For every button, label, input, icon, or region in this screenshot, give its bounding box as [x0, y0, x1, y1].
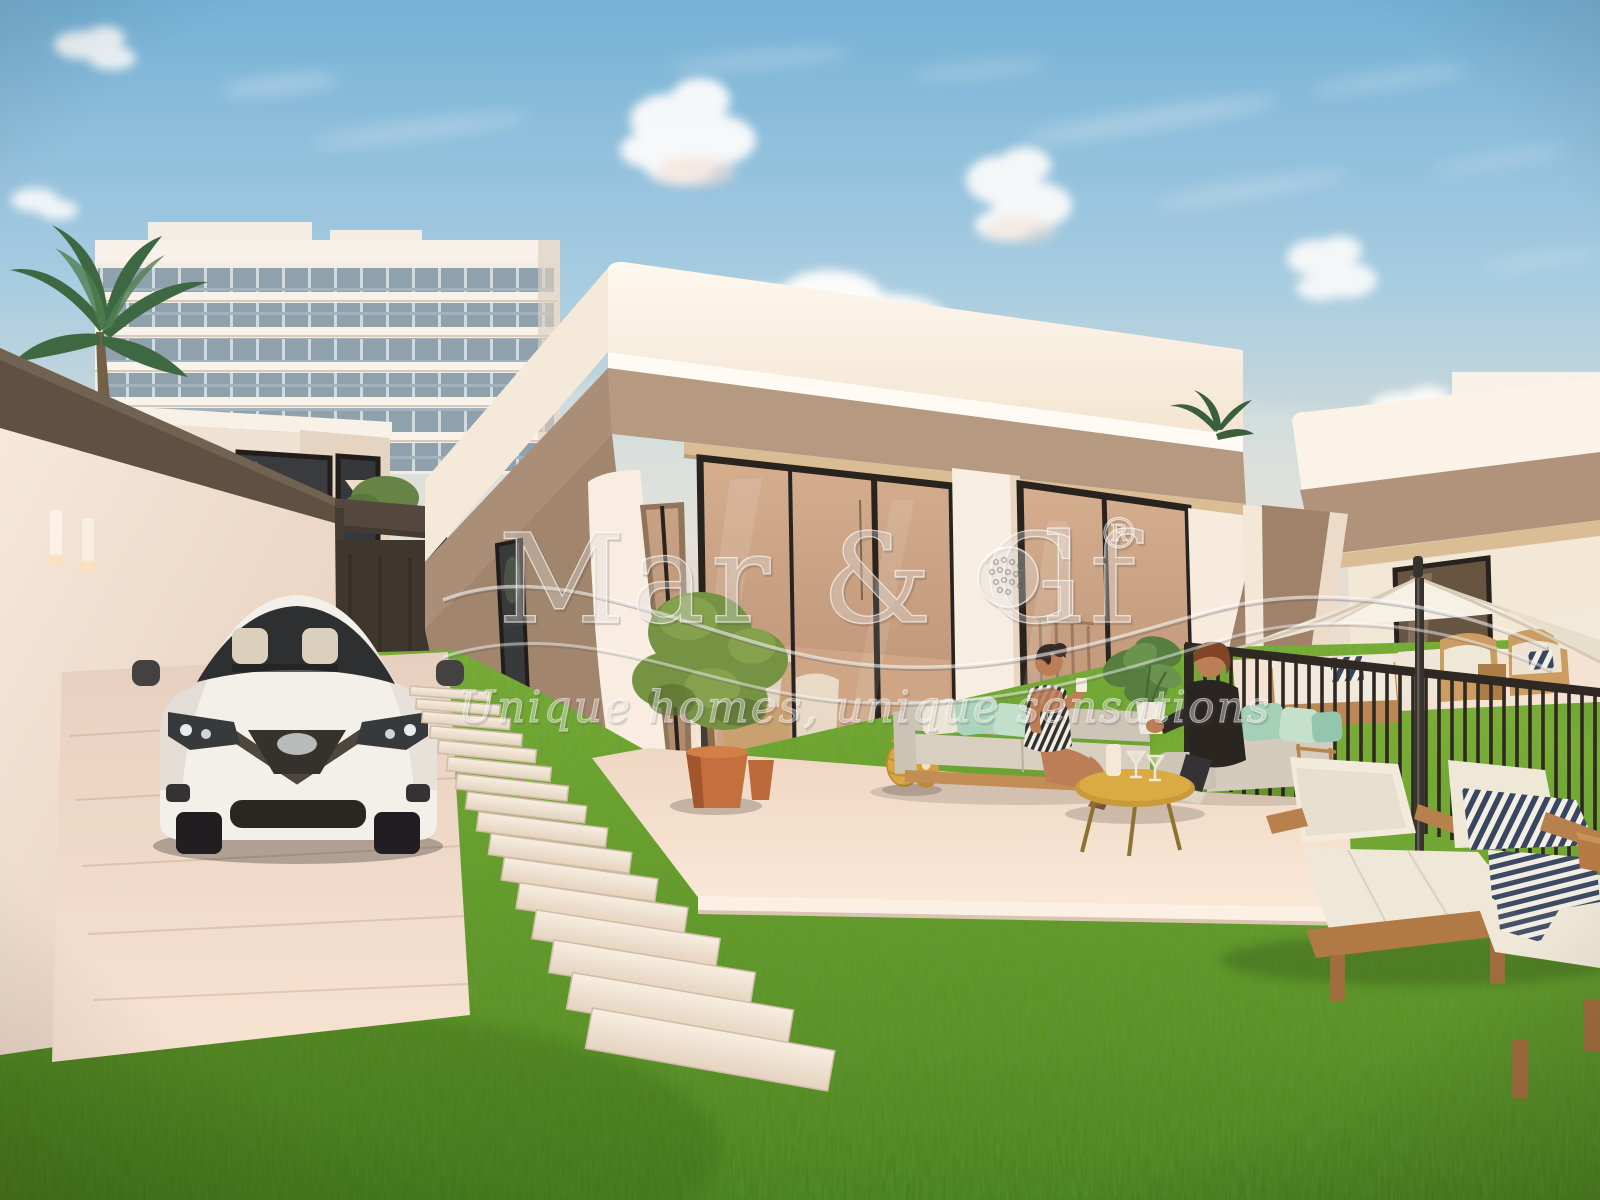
watermark-tagline: Unique homes, unique sensations [458, 682, 1271, 733]
golf-ball-icon [978, 547, 1038, 607]
render-image: Mar & G lf ® Unique homes, unique sensat… [0, 0, 1600, 1200]
watermark-registered: ® [1098, 509, 1140, 558]
